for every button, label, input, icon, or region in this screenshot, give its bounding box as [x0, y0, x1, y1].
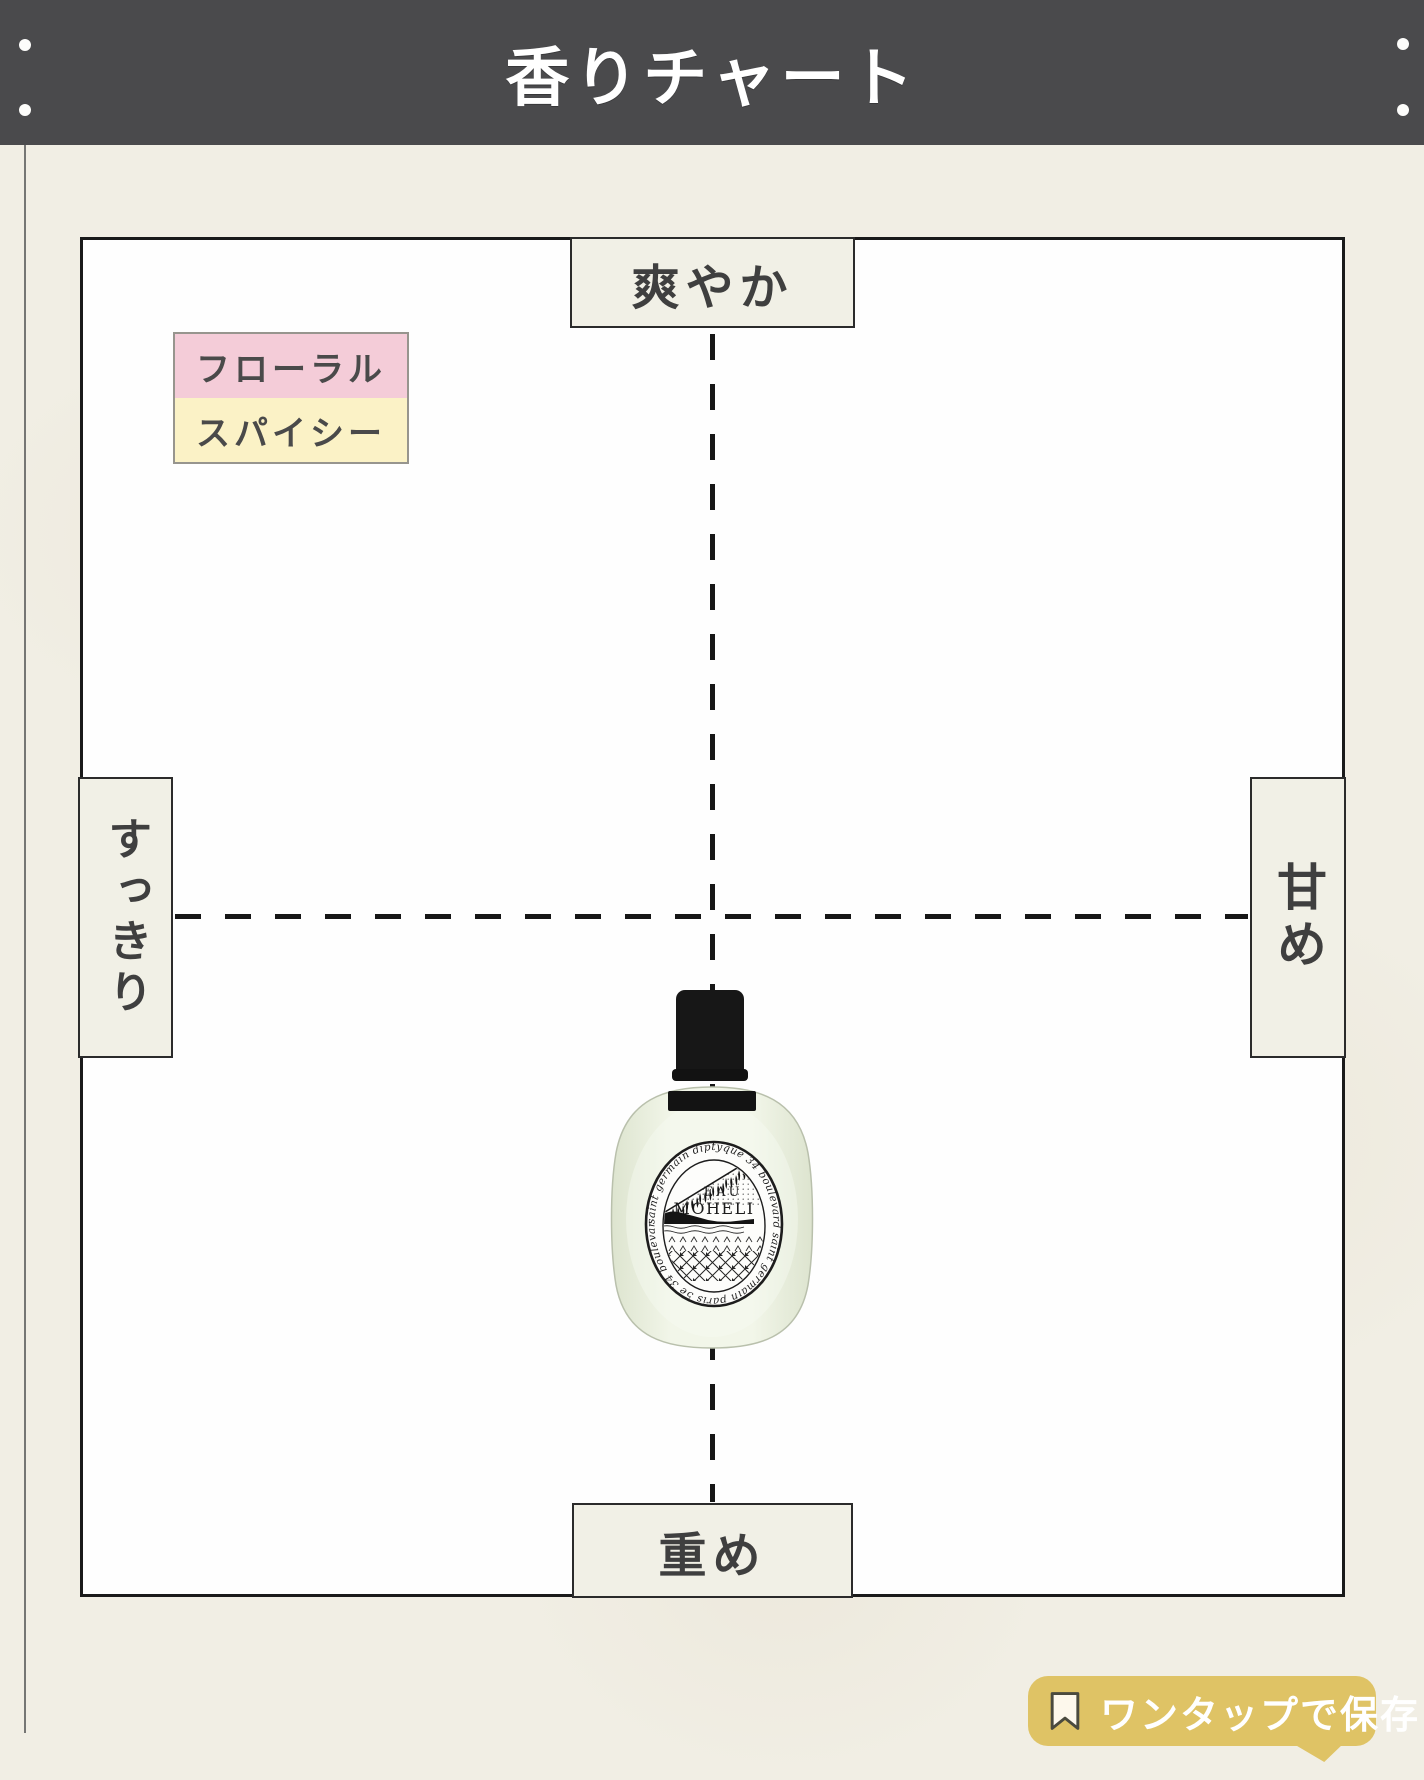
save-button-bubble-tail	[1292, 1743, 1344, 1762]
axis-label-top-text: 爽やか	[631, 248, 793, 318]
margin-rule-line	[24, 145, 26, 1733]
binder-hole	[19, 39, 31, 51]
axis-label-right-text: 甘め	[1262, 861, 1334, 975]
axis-label-top: 爽やか	[570, 237, 855, 328]
legend-item-floral: フローラル	[175, 334, 407, 398]
axis-label-bottom-text: 重め	[658, 1516, 766, 1586]
header-bar: 香りチャート	[0, 0, 1424, 145]
bookmark-icon	[1043, 1689, 1087, 1733]
binder-hole	[1397, 104, 1409, 116]
legend-item-spicy: スパイシー	[175, 398, 407, 462]
bottle-collar	[668, 1091, 756, 1111]
bottle-cap-base	[672, 1069, 748, 1081]
binder-hole	[19, 104, 31, 116]
save-button-label: ワンタップで保存！	[1100, 1684, 1424, 1739]
axis-label-bottom: 重め	[572, 1503, 853, 1598]
bottle-cap	[676, 990, 744, 1078]
axis-label-left: すっきり	[78, 777, 173, 1058]
perfume-bottle: saint germain diptyque 34 boulevard sain…	[602, 983, 822, 1355]
legend: フローラル スパイシー	[173, 332, 409, 464]
axis-label-left-text: すっきり	[94, 816, 158, 1020]
axis-label-right: 甘め	[1250, 777, 1346, 1058]
kaori-chart-page: 香りチャート 爽やか 重め すっきり 甘め フローラル スパイシー	[0, 0, 1424, 1780]
legend-item-spicy-label: スパイシー	[196, 406, 386, 455]
legend-item-floral-label: フローラル	[196, 342, 386, 391]
product-name-line1: EAU	[704, 1185, 743, 1200]
save-button[interactable]: ワンタップで保存！	[1028, 1676, 1376, 1746]
page-title: 香りチャート	[505, 27, 918, 119]
binder-hole	[1397, 38, 1409, 50]
